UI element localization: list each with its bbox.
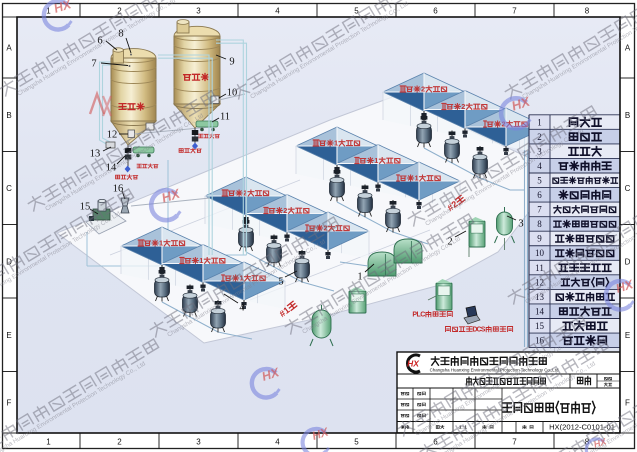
svg-text:12: 12 bbox=[107, 130, 118, 141]
svg-text:F: F bbox=[625, 398, 630, 407]
svg-text:A: A bbox=[625, 44, 631, 53]
svg-text:D: D bbox=[625, 257, 631, 266]
svg-text:1: 1 bbox=[334, 139, 338, 148]
svg-text:9: 9 bbox=[537, 234, 542, 244]
svg-text:7: 7 bbox=[512, 7, 517, 16]
svg-text:6: 6 bbox=[537, 190, 542, 200]
svg-text:6: 6 bbox=[433, 7, 438, 16]
svg-text:10: 10 bbox=[535, 248, 545, 258]
svg-text:14: 14 bbox=[535, 306, 545, 316]
svg-text:A: A bbox=[6, 44, 12, 53]
svg-text:HX: HX bbox=[407, 359, 420, 369]
svg-text:C: C bbox=[420, 312, 425, 319]
svg-text:C: C bbox=[6, 184, 12, 193]
svg-text:8: 8 bbox=[537, 219, 542, 229]
svg-text:4: 4 bbox=[275, 7, 280, 16]
svg-text:C: C bbox=[625, 184, 631, 193]
svg-text:7: 7 bbox=[512, 438, 517, 447]
svg-text:11: 11 bbox=[220, 112, 230, 123]
svg-text:4: 4 bbox=[275, 438, 280, 447]
svg-text:S: S bbox=[481, 327, 486, 334]
svg-text:3: 3 bbox=[196, 438, 201, 447]
svg-text:4: 4 bbox=[239, 303, 245, 314]
svg-text:2: 2 bbox=[421, 85, 425, 94]
svg-text:2: 2 bbox=[283, 206, 287, 215]
svg-text:5: 5 bbox=[278, 277, 283, 288]
svg-text:1: 1 bbox=[199, 256, 203, 265]
svg-text:3: 3 bbox=[518, 219, 523, 230]
svg-text:1: 1 bbox=[159, 239, 163, 248]
svg-text:1: 1 bbox=[46, 438, 51, 447]
svg-text:1: 1 bbox=[537, 117, 542, 127]
svg-text:2: 2 bbox=[461, 102, 465, 111]
svg-text:1: 1 bbox=[414, 174, 418, 183]
svg-text:E: E bbox=[625, 331, 630, 340]
svg-text:5: 5 bbox=[354, 438, 359, 447]
svg-text:8: 8 bbox=[585, 7, 590, 16]
svg-text:9: 9 bbox=[229, 57, 234, 68]
svg-text:11: 11 bbox=[535, 263, 544, 273]
svg-text:F: F bbox=[7, 398, 12, 407]
svg-text:13: 13 bbox=[90, 149, 101, 160]
svg-text:15: 15 bbox=[80, 202, 91, 213]
svg-text:5: 5 bbox=[537, 175, 542, 185]
svg-text:2: 2 bbox=[117, 438, 122, 447]
svg-text:1: 1 bbox=[374, 156, 378, 165]
svg-text:10: 10 bbox=[227, 88, 238, 99]
svg-text:E: E bbox=[6, 331, 11, 340]
svg-text:4: 4 bbox=[537, 161, 542, 171]
svg-text:B: B bbox=[625, 111, 630, 120]
svg-text:B: B bbox=[6, 111, 11, 120]
svg-text:7: 7 bbox=[537, 205, 542, 215]
svg-text:7: 7 bbox=[91, 59, 96, 70]
svg-text:1: 1 bbox=[357, 272, 362, 283]
svg-text:15: 15 bbox=[535, 321, 545, 331]
svg-text:3: 3 bbox=[196, 7, 201, 16]
